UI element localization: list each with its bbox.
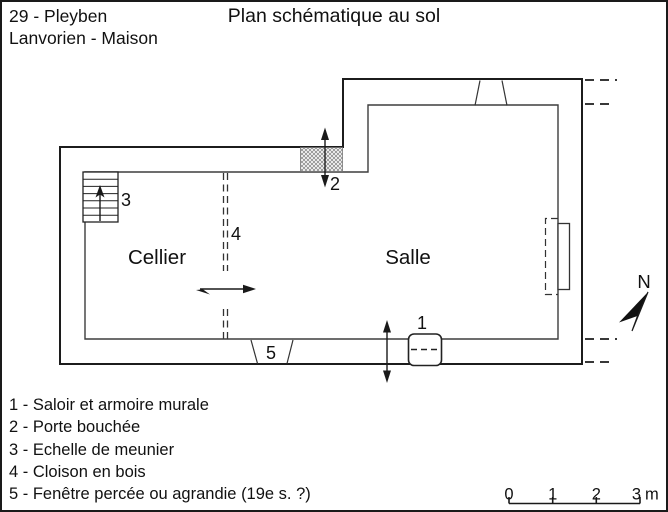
marker-4-cloison: 4 (231, 224, 241, 244)
reference-line-2: Lanvorien - Maison (9, 27, 158, 49)
scale-tick-label: 1 (548, 486, 557, 504)
scale-tick-label: 0 (504, 486, 513, 504)
saloir (409, 334, 442, 366)
legend-item: 2 - Porte bouchée (9, 416, 311, 438)
scale-tick-label: 3 (632, 486, 641, 504)
compass-needle (619, 292, 648, 323)
scale-unit-label: m (645, 486, 659, 504)
entrance-door-arrow (383, 320, 391, 383)
legend-item: 4 - Cloison en bois (9, 461, 311, 483)
miller-ladder (83, 172, 118, 222)
room-label-cellier: Cellier (128, 246, 186, 269)
legend-item: 5 - Fenêtre percée ou agrandie (19e s. ?… (9, 483, 311, 505)
marker-2-porte-bouchee: 2 (330, 174, 340, 194)
inner-walls (85, 105, 558, 339)
north-compass: N (619, 271, 651, 331)
marker-5-fenetre: 5 (266, 343, 276, 363)
room-label-salle: Salle (385, 246, 431, 269)
scale-bar: 0 1 2 3 m (504, 486, 658, 504)
legend-item: 3 - Echelle de meunier (9, 439, 311, 461)
drawing-sheet: Cellier Salle 1 2 3 4 5 N 0 1 2 3 m (0, 0, 668, 512)
page-title: Plan schématique au sol (0, 5, 668, 28)
north-label: N (637, 271, 650, 292)
wood-partition (224, 173, 228, 339)
wall-continuation-dashes (585, 80, 617, 362)
legend: 1 - Saloir et armoire murale 2 - Porte b… (9, 394, 311, 505)
scale-tick-label: 2 (592, 486, 601, 504)
north-window (475, 81, 507, 106)
marker-1-saloir: 1 (417, 313, 427, 333)
partition-doorway-arrow (196, 285, 256, 295)
wall-cupboard (546, 219, 570, 295)
legend-item: 1 - Saloir et armoire murale (9, 394, 311, 416)
blocked-door-hatch (301, 148, 343, 172)
outer-walls (60, 79, 582, 364)
marker-3-echelle: 3 (121, 190, 131, 210)
